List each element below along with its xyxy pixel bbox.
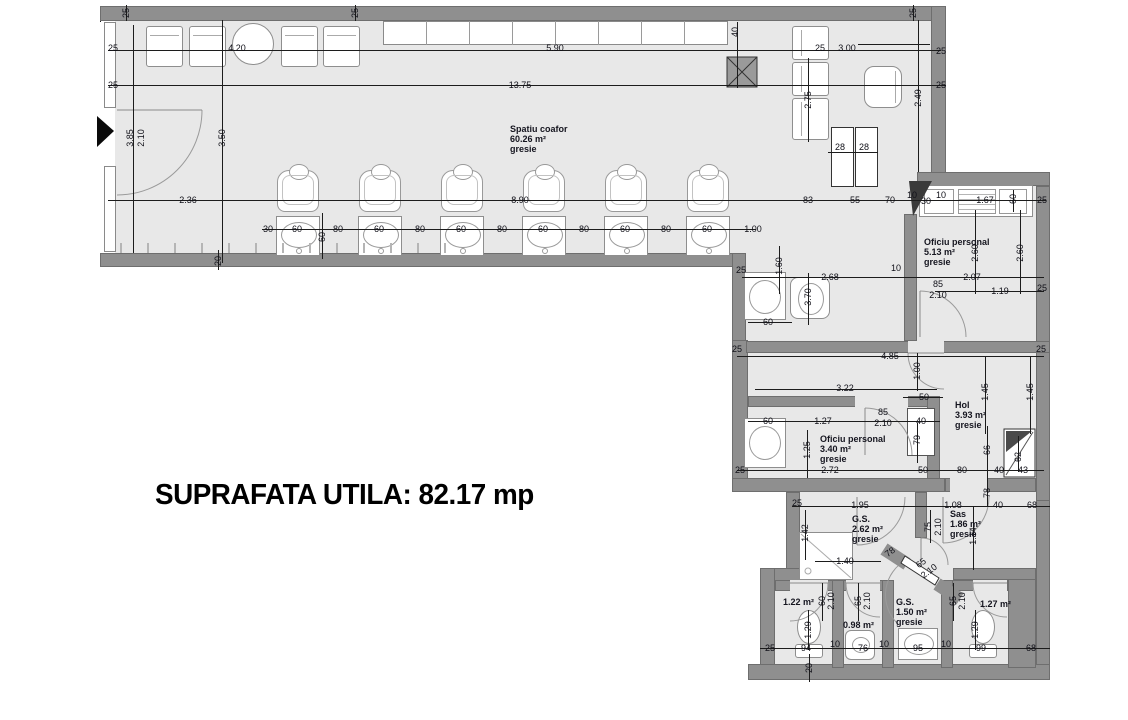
- room-label: G.S.2.62 m²gresie: [852, 514, 883, 544]
- window-divider: [426, 21, 427, 45]
- dimension-label: 30: [263, 224, 273, 234]
- dimension-label: 60: [374, 224, 384, 234]
- radiator-tick: [228, 243, 230, 253]
- dimension-label: 2.75: [803, 91, 813, 109]
- room-label-line: G.S.: [852, 514, 883, 524]
- room-label-line: gresie: [950, 529, 981, 539]
- dimension-label: 3.22: [836, 383, 854, 393]
- dimension-label: 1.45: [980, 383, 990, 401]
- dimension-line: [108, 200, 1046, 201]
- dimension-label: 2.07: [963, 272, 981, 282]
- dimension-label: 60: [456, 224, 466, 234]
- dimension-label: 80: [579, 224, 589, 234]
- room-label-line: 2.62 m²: [852, 524, 883, 534]
- dimension-line: [858, 44, 930, 45]
- armchair: [864, 66, 902, 108]
- window-divider: [512, 21, 513, 45]
- cabinet: [855, 127, 878, 187]
- window-divider: [684, 21, 685, 45]
- cabinet: [831, 127, 854, 187]
- styling-chair: [523, 170, 565, 212]
- room-label: 1.22 m²: [783, 597, 814, 607]
- styling-chair: [277, 170, 319, 212]
- waiting-chair: [189, 26, 226, 67]
- wash-basin-station: [604, 216, 648, 256]
- window-divider: [598, 21, 599, 45]
- dimension-label: 60: [292, 224, 302, 234]
- window-strip: [104, 166, 116, 252]
- dimension-label: 55: [850, 195, 860, 205]
- dimension-label: 62: [1013, 452, 1023, 462]
- dimension-label: 1.00: [912, 362, 922, 380]
- dimension-label: 3.70: [803, 288, 813, 306]
- dimension-label: 3.85: [125, 129, 135, 147]
- dimension-label: 60: [538, 224, 548, 234]
- dimension-label: 25: [108, 43, 118, 53]
- dimension-label: 28: [835, 142, 845, 152]
- dimension-label: 1.67: [976, 195, 994, 205]
- room-label-line: 0.98 m²: [843, 620, 874, 630]
- dimension-label: 1.45: [1025, 383, 1035, 401]
- dimension-label: 2.36: [179, 195, 197, 205]
- dimension-label: 76: [858, 643, 868, 653]
- room-label-line: gresie: [924, 257, 990, 267]
- room-label-line: 1.27 m²: [980, 599, 1011, 609]
- room-label-line: 1.50 m²: [896, 607, 927, 617]
- dimension-label: 1.29: [970, 621, 980, 639]
- dimension-label: 4.20: [228, 43, 246, 53]
- dimension-label: 60: [317, 232, 327, 242]
- dimension-label: 25: [1036, 344, 1046, 354]
- dimension-label: 70: [885, 195, 895, 205]
- usable-area-title: SUPRAFATA UTILA: 82.17 mp: [155, 479, 534, 512]
- dimension-label: 25: [936, 46, 946, 56]
- door-opening: [855, 396, 908, 407]
- dimension-label: 25: [732, 344, 742, 354]
- dimension-label: 1.27: [814, 416, 832, 426]
- dimension-label: 3.00: [838, 43, 856, 53]
- dimension-label: 60: [702, 224, 712, 234]
- room-label-line: Oficiu personal: [820, 434, 886, 444]
- dimension-label: 10: [936, 190, 946, 200]
- dimension-label: 25: [815, 43, 825, 53]
- dimension-label: 10: [830, 639, 840, 649]
- room-label-line: gresie: [510, 144, 568, 154]
- dimension-label: 25: [792, 498, 802, 508]
- dimension-label: 40: [916, 416, 926, 426]
- dimension-label: 2.10: [929, 290, 947, 300]
- dimension-label: 8.90: [511, 195, 529, 205]
- room-label-line: 60.26 m²: [510, 134, 568, 144]
- room-label-line: gresie: [820, 454, 886, 464]
- door-opening: [908, 341, 944, 353]
- dimension-label: 20: [213, 256, 223, 266]
- styling-chair: [605, 170, 647, 212]
- dimension-label: 75: [923, 522, 933, 532]
- wall: [931, 6, 946, 178]
- wall: [1036, 500, 1050, 680]
- room-label-line: G.S.: [896, 597, 927, 607]
- dimension-label: 80: [957, 465, 967, 475]
- styling-chair: [359, 170, 401, 212]
- wall: [748, 664, 1050, 680]
- dimension-label: 25: [908, 8, 918, 18]
- dimension-label: 99: [976, 643, 986, 653]
- dimension-label: 1.60: [774, 257, 784, 275]
- wall: [100, 253, 746, 267]
- room-label-line: 1.86 m²: [950, 519, 981, 529]
- window-divider: [555, 21, 556, 45]
- window-divider: [469, 21, 470, 45]
- radiator-tick: [120, 243, 122, 253]
- room-label: 1.27 m²: [980, 599, 1011, 609]
- dimension-label: 1.19: [991, 286, 1009, 296]
- dimension-label: 1.95: [851, 500, 869, 510]
- dimension-label: 2.10: [933, 518, 943, 536]
- wash-basin-station: [686, 216, 730, 256]
- dimension-line: [935, 291, 1044, 292]
- room-label-line: Spatiu coafor: [510, 124, 568, 134]
- dimension-label: 43: [1018, 465, 1028, 475]
- window-strip: [104, 22, 116, 108]
- dimension-label: 2.68: [821, 272, 839, 282]
- radiator-tick: [309, 243, 311, 253]
- room-label-line: gresie: [955, 420, 986, 430]
- dimension-label: 60: [1008, 194, 1018, 204]
- door-opening: [846, 580, 880, 591]
- door-opening: [973, 580, 1007, 591]
- dimension-label: 13.75: [509, 80, 532, 90]
- dimension-label: 2.10: [826, 592, 836, 610]
- room-label-line: 1.22 m²: [783, 597, 814, 607]
- radiator-tick: [147, 243, 149, 253]
- dimension-label: 30: [921, 196, 931, 206]
- dimension-label: 4.85: [881, 351, 899, 361]
- radiator-tick: [363, 243, 365, 253]
- room-label-line: 5.13 m²: [924, 247, 990, 257]
- dimension-label: 2.10: [862, 592, 872, 610]
- dimension-label: 28: [859, 142, 869, 152]
- floor-area: [746, 353, 1036, 478]
- room-label: 0.98 m²: [843, 620, 874, 630]
- wall: [1008, 572, 1036, 668]
- dimension-label: 79: [912, 435, 922, 445]
- dimension-label: 40: [730, 27, 740, 37]
- dimension-label: 50: [918, 465, 928, 475]
- dimension-label: 25: [736, 265, 746, 275]
- wall: [732, 478, 945, 492]
- dimension-label: 85: [878, 407, 888, 417]
- radiator-tick: [174, 243, 176, 253]
- room-label: Sas1.86 m²gresie: [950, 509, 981, 539]
- floor-plan-page: 2525254.20255.9013.7540253.002525252.492…: [0, 0, 1128, 720]
- room-label-line: gresie: [896, 617, 927, 627]
- room-label-line: Hol: [955, 400, 986, 410]
- radiator-tick: [417, 243, 419, 253]
- dimension-label: 2.10: [136, 129, 146, 147]
- dimension-label: 1.29: [803, 621, 813, 639]
- dimension-label: 80: [497, 224, 507, 234]
- dimension-label: 40: [993, 500, 1003, 510]
- dimension-label: 25: [121, 8, 131, 18]
- dimension-label: 1.25: [802, 441, 812, 459]
- dimension-label: 95: [913, 643, 923, 653]
- dimension-label: 40: [994, 465, 1004, 475]
- room-label: Spatiu coafor60.26 m²gresie: [510, 124, 568, 154]
- room-label-line: gresie: [852, 534, 883, 544]
- dimension-line: [828, 152, 878, 153]
- dimension-label: 25: [735, 465, 745, 475]
- dimension-label: 80: [661, 224, 671, 234]
- dimension-label: 80: [333, 224, 343, 234]
- room-label: Hol3.93 m²gresie: [955, 400, 986, 430]
- entrance-arrow-icon: [97, 116, 114, 147]
- dimension-label: 25: [350, 8, 360, 18]
- dimension-label: 1.00: [744, 224, 762, 234]
- radiator-tick: [390, 243, 392, 253]
- dimension-label: 68: [1026, 643, 1036, 653]
- dimension-label: 50: [919, 392, 929, 402]
- window-divider: [641, 21, 642, 45]
- dimension-label: 25: [108, 80, 118, 90]
- room-label: Oficiu personal5.13 m²gresie: [924, 237, 990, 267]
- dimension-line: [748, 421, 940, 422]
- wall: [941, 580, 953, 668]
- dimension-label: 25: [765, 643, 775, 653]
- waiting-chair: [281, 26, 318, 67]
- radiator-tick: [282, 243, 284, 253]
- dimension-label: 10: [891, 263, 901, 273]
- styling-chair: [441, 170, 483, 212]
- radiator-tick: [201, 243, 203, 253]
- room-label: G.S.1.50 m²gresie: [896, 597, 927, 627]
- radiator-tick: [255, 243, 257, 253]
- dimension-label: 2.10: [957, 592, 967, 610]
- radiator-tick: [336, 243, 338, 253]
- dimension-label: 60: [763, 317, 773, 327]
- room-label-line: Oficiu personal: [924, 237, 990, 247]
- dimension-label: 66: [982, 445, 992, 455]
- room-label: Oficiu personal3.40 m²gresie: [820, 434, 886, 464]
- wall: [953, 568, 1036, 580]
- dimension-label: 25: [1037, 195, 1047, 205]
- dimension-label: 2.10: [874, 418, 892, 428]
- wall: [882, 580, 894, 668]
- wall: [100, 6, 946, 21]
- dimension-label: 78: [982, 488, 992, 498]
- wall: [917, 172, 1050, 186]
- dimension-label: 60: [620, 224, 630, 234]
- dimension-label: 5.90: [546, 43, 564, 53]
- dimension-label: 2.60: [1015, 244, 1025, 262]
- dimension-label: 25: [1037, 283, 1047, 293]
- dimension-line: [792, 506, 1050, 507]
- dimension-line: [100, 21, 101, 22]
- dimension-label: 83: [803, 195, 813, 205]
- dimension-label: 25: [936, 80, 946, 90]
- dimension-label: 68: [1027, 500, 1037, 510]
- room-label-line: 3.40 m²: [820, 444, 886, 454]
- dimension-label: 1.40: [836, 556, 854, 566]
- dimension-label: 2.72: [821, 465, 839, 475]
- waiting-chair: [323, 26, 360, 67]
- dimension-label: 10: [879, 639, 889, 649]
- door-opening: [894, 580, 941, 591]
- dimension-label: 80: [415, 224, 425, 234]
- room-label-line: 3.93 m²: [955, 410, 986, 420]
- dimension-label: 3.50: [217, 129, 227, 147]
- dimension-label: 1.42: [800, 524, 810, 542]
- dimension-label: 2.49: [913, 89, 923, 107]
- wash-basin-station: [440, 216, 484, 256]
- waiting-chair: [146, 26, 183, 67]
- dimension-label: 94: [801, 643, 811, 653]
- dimension-label: 85: [933, 279, 943, 289]
- dimension-label: 10: [941, 639, 951, 649]
- dimension-label: 60: [763, 416, 773, 426]
- room-label-line: Sas: [950, 509, 981, 519]
- dimension-label: 20: [804, 663, 814, 673]
- dimension-label: 10: [907, 190, 917, 200]
- wash-basin-station: [522, 216, 566, 256]
- styling-chair: [687, 170, 729, 212]
- radiator-tick: [444, 243, 446, 253]
